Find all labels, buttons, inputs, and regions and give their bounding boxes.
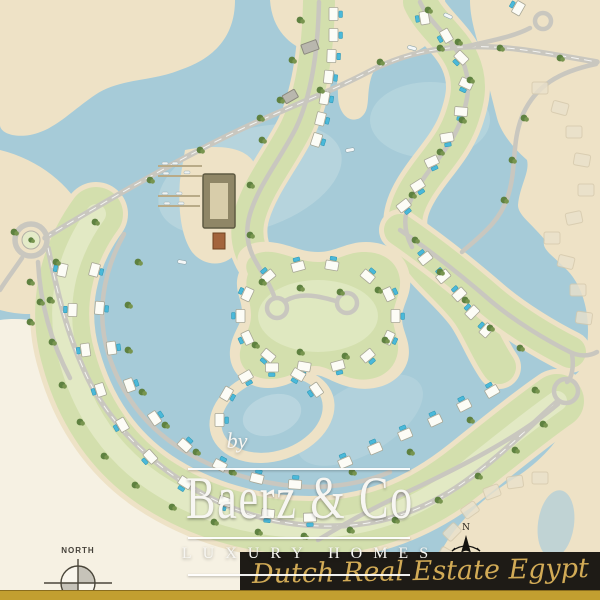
- brand-tagline: LUXURY HOMES: [140, 545, 470, 563]
- divider-line-top: [188, 468, 410, 470]
- compass-n-label: N: [448, 524, 484, 533]
- masterplan-map: by Baerz & Co LUXURY HOMES Dutch Real Es…: [0, 0, 600, 600]
- north-label: NORTH: [34, 546, 122, 555]
- brand-by: by: [205, 428, 269, 454]
- gold-stripe: [0, 590, 600, 600]
- divider-line-middle: [188, 537, 410, 539]
- divider-line-bottom: [188, 574, 410, 576]
